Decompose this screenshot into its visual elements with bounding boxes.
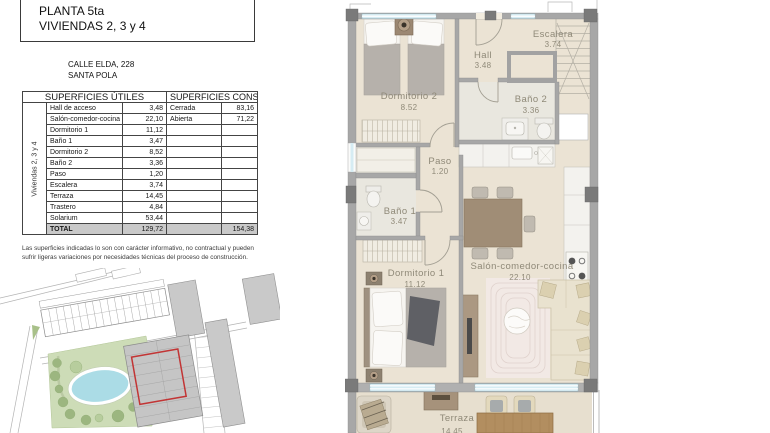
table-row: Dormitorio 28,52 xyxy=(23,147,258,158)
room-label-terraza: Terraza xyxy=(440,413,475,424)
shower-niche xyxy=(558,114,588,140)
disclaimer-text: Las superficies indicadas lo son con car… xyxy=(22,245,269,262)
room-area-bano-2: 3.36 xyxy=(523,106,540,115)
room-area-paso: 1.20 xyxy=(432,167,449,176)
toilet xyxy=(367,191,380,207)
vertical-label-cell: Viviendas 2, 3 y 4 xyxy=(23,103,47,235)
kitchen-sink xyxy=(512,147,532,159)
toilet xyxy=(537,123,551,139)
table-row: Baño 23,36 xyxy=(23,158,258,169)
room-label-dormitorio-1: Dormitorio 1 xyxy=(388,268,445,279)
table-row: Salón-comedor-cocina22,10Abierta71,22 xyxy=(23,114,258,125)
room-label-salon: Salón-comedor-cocina xyxy=(470,261,573,272)
room-label-escalera: Escalera xyxy=(533,29,573,40)
sideboard xyxy=(424,391,458,410)
row-cvalue: 83,16 xyxy=(222,103,258,114)
floor-plan: Dormitorio 2 8.52 Hall 3.48 Escalera 3.7… xyxy=(345,0,601,433)
room-label-bano-2: Baño 2 xyxy=(515,94,548,105)
room-area-escalera: 3.74 xyxy=(545,40,562,49)
dining-table xyxy=(464,199,522,247)
room-label-dormitorio-2: Dormitorio 2 xyxy=(381,91,438,102)
col-header-utiles: SUPERFICIES ÚTILES xyxy=(23,92,167,103)
row-clabel: Cerrada xyxy=(167,103,222,114)
tv xyxy=(467,318,472,354)
room-area-terraza: 14.45 xyxy=(441,427,463,433)
room-label-bano-1: Baño 1 xyxy=(384,206,417,217)
row-name: Hall de acceso xyxy=(47,103,123,114)
table-row: Paso1,20 xyxy=(23,169,258,180)
table-total-row: TOTAL129,72154,38 xyxy=(23,224,258,235)
table-row: Solarium53,44 xyxy=(23,213,258,224)
exterior-outline xyxy=(350,0,597,12)
table-row: Escalera3,74 xyxy=(23,180,258,191)
table-row: Baño 13,47 xyxy=(23,136,258,147)
room-label-hall: Hall xyxy=(474,50,492,61)
room-label-paso: Paso xyxy=(428,156,451,167)
terrace-table xyxy=(477,413,553,433)
table-row: Dormitorio 111,12 xyxy=(23,125,258,136)
site-neighbor-outlines xyxy=(75,268,140,282)
room-area-hall: 3.48 xyxy=(475,61,492,70)
bathroom2-fixtures xyxy=(502,114,588,140)
site-townhouses xyxy=(39,279,169,336)
site-main-building xyxy=(124,335,203,427)
storage-closet xyxy=(357,148,415,172)
address-line2: SANTA POLA xyxy=(68,70,134,81)
vertical-label: Viviendas 2, 3 y 4 xyxy=(30,141,39,196)
table-row: Trastero4,84 xyxy=(23,202,258,213)
table-row: Terraza14,45 xyxy=(23,191,258,202)
room-area-dormitorio-1: 11.12 xyxy=(405,280,426,289)
row-value: 3,48 xyxy=(123,103,167,114)
site-plan xyxy=(0,268,280,433)
room-area-salon: 22.10 xyxy=(509,273,531,282)
address-line1: CALLE ELDA, 228 xyxy=(68,59,134,70)
table-header-row: SUPERFICIES ÚTILES SUPERFICIES CONSTRUID… xyxy=(23,92,258,103)
col-header-construidas: SUPERFICIES CONSTRUIDAS xyxy=(167,92,258,103)
room-area-bano-1: 3.47 xyxy=(391,217,408,226)
table-row: Viviendas 2, 3 y 4 Hall de acceso 3,48 C… xyxy=(23,103,258,114)
plan-title-line2: VIVIENDAS 2, 3 y 4 xyxy=(39,19,254,34)
address-block: CALLE ELDA, 228 SANTA POLA xyxy=(68,59,134,81)
plan-title-line1: PLANTA 5ta xyxy=(39,4,254,19)
title-box: PLANTA 5ta VIVIENDAS 2, 3 y 4 xyxy=(20,0,255,42)
coffee-table xyxy=(504,308,530,334)
surface-areas-table: SUPERFICIES ÚTILES SUPERFICIES CONSTRUID… xyxy=(22,91,258,235)
room-area-dormitorio-2: 8.52 xyxy=(401,103,418,112)
